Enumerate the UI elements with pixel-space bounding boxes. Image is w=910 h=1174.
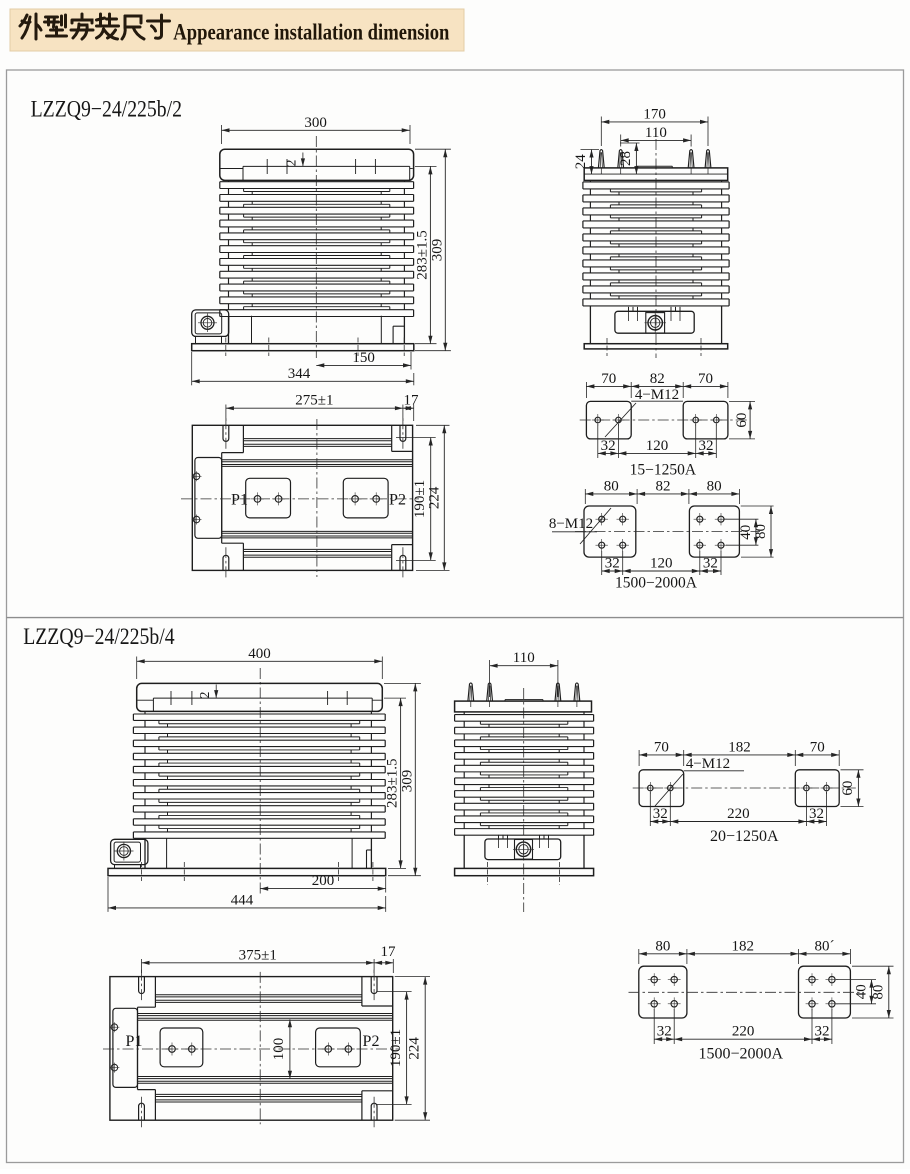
svg-text:400: 400: [248, 646, 271, 662]
svg-text:32: 32: [605, 556, 620, 572]
svg-text:309: 309: [429, 239, 445, 262]
svg-text:70: 70: [698, 371, 713, 387]
svg-text:182: 182: [728, 739, 751, 755]
svg-text:20−1250A: 20−1250A: [710, 828, 779, 845]
svg-text:32: 32: [601, 438, 616, 454]
svg-text:80: 80: [707, 478, 722, 494]
svg-text:120: 120: [646, 438, 669, 454]
svg-text:182: 182: [731, 938, 754, 954]
svg-text:190±1: 190±1: [388, 1029, 404, 1067]
svg-text:82: 82: [656, 478, 671, 494]
svg-text:28: 28: [618, 151, 634, 166]
svg-text:LZZQ9−24/225b/2: LZZQ9−24/225b/2: [31, 96, 182, 122]
svg-text:80: 80: [655, 938, 670, 954]
svg-text:444: 444: [231, 892, 254, 908]
svg-text:80: 80: [871, 985, 887, 1000]
svg-text:82: 82: [650, 371, 665, 387]
svg-text:LZZQ9−24/225b/4: LZZQ9−24/225b/4: [23, 623, 175, 649]
svg-text:200: 200: [312, 873, 335, 889]
svg-text:32: 32: [699, 438, 714, 454]
svg-text:170: 170: [643, 106, 666, 122]
svg-text:4−M12: 4−M12: [686, 756, 730, 772]
svg-text:15−1250A: 15−1250A: [630, 462, 697, 479]
svg-text:375±1: 375±1: [239, 947, 277, 963]
svg-text:309: 309: [399, 770, 415, 793]
svg-text:2: 2: [197, 692, 212, 699]
svg-text:224: 224: [407, 1037, 423, 1060]
svg-text:8−M12: 8−M12: [549, 516, 593, 532]
svg-text:275±1: 275±1: [295, 393, 333, 409]
svg-text:70: 70: [810, 739, 825, 755]
svg-text:32: 32: [809, 806, 824, 822]
svg-text:110: 110: [513, 650, 535, 666]
svg-text:2: 2: [284, 160, 299, 167]
svg-text:70: 70: [654, 739, 669, 755]
svg-text:80: 80: [753, 524, 769, 539]
svg-text:220: 220: [732, 1024, 755, 1040]
svg-text:120: 120: [650, 556, 673, 572]
svg-text:1500−2000A: 1500−2000A: [699, 1046, 784, 1063]
svg-text:17: 17: [381, 944, 397, 960]
svg-text:283±1.5: 283±1.5: [385, 759, 401, 808]
svg-text:17: 17: [404, 393, 420, 409]
svg-text:70: 70: [601, 371, 616, 387]
svg-text:60: 60: [734, 413, 750, 428]
svg-text:80´: 80´: [814, 938, 834, 954]
svg-text:P1: P1: [126, 1033, 143, 1050]
svg-text:224: 224: [427, 486, 443, 509]
svg-text:220: 220: [727, 806, 750, 822]
svg-text:60: 60: [840, 781, 856, 796]
svg-text:24: 24: [573, 154, 589, 170]
svg-text:Appearance installation dimens: Appearance installation dimension: [173, 19, 449, 45]
svg-text:32: 32: [657, 1024, 672, 1040]
svg-text:150: 150: [352, 350, 375, 366]
svg-text:283±1.5: 283±1.5: [414, 230, 430, 279]
svg-text:344: 344: [288, 366, 311, 382]
svg-text:P2: P2: [389, 492, 406, 509]
svg-text:1500−2000A: 1500−2000A: [615, 574, 698, 591]
svg-text:P2: P2: [363, 1033, 380, 1050]
svg-text:32: 32: [703, 556, 718, 572]
svg-text:P1: P1: [231, 492, 248, 509]
svg-text:80: 80: [604, 478, 619, 494]
svg-text:4−M12: 4−M12: [635, 387, 679, 403]
svg-text:110: 110: [645, 125, 667, 141]
svg-text:40: 40: [853, 984, 869, 999]
svg-text:32: 32: [814, 1024, 829, 1040]
svg-text:300: 300: [304, 115, 327, 131]
svg-text:40: 40: [738, 525, 754, 540]
svg-text:32: 32: [653, 806, 668, 822]
